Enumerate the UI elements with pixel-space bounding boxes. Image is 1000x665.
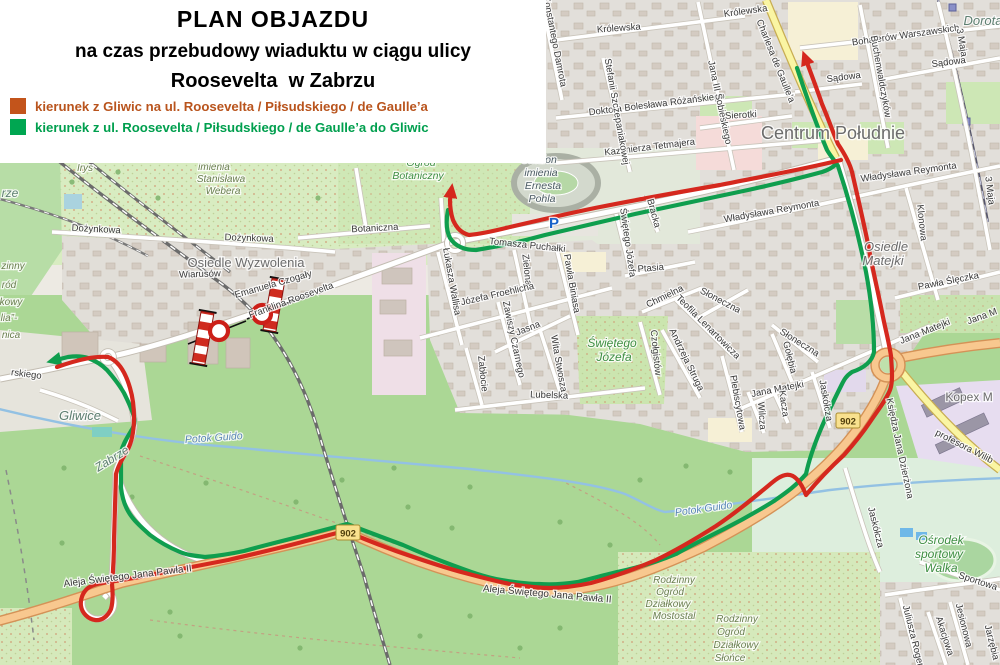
- legend-color-swatch-green: [10, 119, 26, 135]
- map-label: Matejki: [862, 253, 904, 268]
- map-label: Wiarusów: [179, 268, 221, 280]
- road-closed-sign-icon: [210, 322, 228, 340]
- legend-label: kierunek z Gliwic na ul. Roosevelta / Pi…: [35, 99, 428, 114]
- map-label: Ogród: [656, 587, 684, 598]
- legend-item-to-roosevelt: kierunek z Gliwic na ul. Roosevelta / Pi…: [10, 98, 546, 114]
- road-ref-shield: 902: [336, 525, 360, 540]
- map-label: Irys: [77, 163, 93, 174]
- plan-title: PLAN OBJAZDU: [0, 6, 546, 33]
- map-label: Działkowy: [645, 599, 691, 610]
- map-label: Osiedle: [864, 239, 908, 254]
- map-label: Ernesta: [525, 180, 561, 192]
- svg-text:902: 902: [840, 417, 856, 428]
- map-label: Świętego: [587, 335, 637, 350]
- map-label: Kopex M: [945, 390, 992, 404]
- map-label: Rodzinny: [716, 614, 759, 625]
- map-label: Dożynkowa: [224, 232, 274, 245]
- svg-text:902: 902: [340, 529, 356, 540]
- map-label: Działkowy: [713, 640, 759, 651]
- map-label: Rodzinny: [653, 575, 696, 586]
- map-label: Ośrodek: [918, 533, 964, 547]
- map-label: sportowy: [915, 547, 964, 561]
- map-label: Józefa: [595, 350, 632, 364]
- legend-label: kierunek z ul. Roosevelta / Piłsudskiego…: [35, 120, 429, 135]
- map-label: Dorota: [963, 13, 1000, 28]
- map-label: ród: [2, 280, 17, 291]
- map-label: kowy: [0, 297, 23, 308]
- map-label: P: [549, 215, 559, 232]
- map-label: Webera: [206, 186, 241, 197]
- legend-color-swatch-orange: [10, 98, 26, 114]
- map-label: Gliwice: [59, 408, 101, 423]
- legend-item-to-gliwice: kierunek z ul. Roosevelta / Piłsudskiego…: [10, 119, 546, 135]
- map-label: nica: [2, 330, 21, 341]
- map-label: Lubelska: [530, 389, 569, 401]
- map-label: Osiedle Wyzwolenia: [188, 255, 306, 270]
- detour-plan-poster: 902902 IrysimieniaStanisławaWeberarzeDoż…: [0, 0, 1000, 665]
- map-label: Sierotki: [725, 109, 757, 122]
- map-label: imienia: [524, 167, 557, 179]
- map-label: Mostostal: [653, 611, 697, 622]
- map-label: Walka: [924, 561, 957, 575]
- map-label: imienia: [198, 162, 230, 173]
- plan-subtitle: na czas przebudowy wiaduktu w ciągu ulic…: [0, 41, 546, 63]
- map-label: Centrum Południe: [761, 123, 905, 143]
- map-label: Botaniczny: [392, 170, 444, 182]
- map-label: lia”-: [1, 313, 18, 324]
- map-label: Wilcza: [755, 401, 768, 430]
- map-label: rze: [2, 186, 19, 200]
- train-station-icon: [949, 4, 956, 11]
- map-label: Stanisława: [197, 174, 246, 185]
- map-label: Ogród: [717, 627, 745, 638]
- map-label: Słońce: [715, 653, 746, 664]
- road-ref-shield: 902: [836, 413, 860, 428]
- map-label: zinny: [0, 261, 25, 272]
- map-label: Ptasia: [637, 262, 665, 275]
- plan-subtitle2: Roosevelta w Zabrzu: [0, 70, 546, 93]
- map-label: Pohla: [529, 193, 556, 205]
- title-panel: PLAN OBJAZDU na czas przebudowy wiaduktu…: [0, 0, 546, 163]
